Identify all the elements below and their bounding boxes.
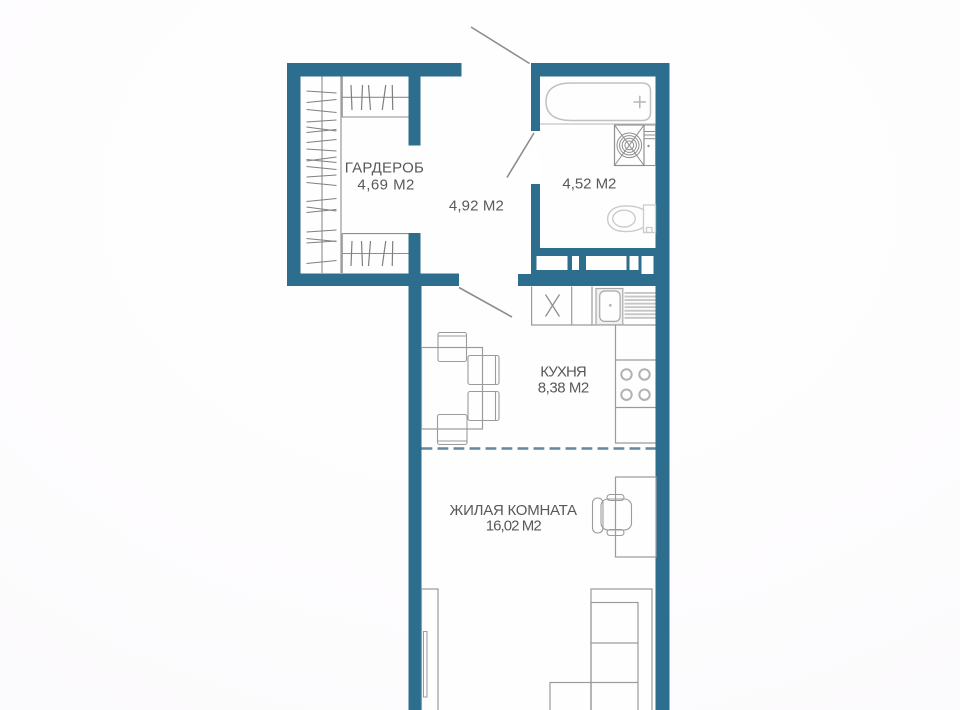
svg-text:8,38 М2: 8,38 М2 xyxy=(538,379,590,396)
svg-text:4,69 М2: 4,69 М2 xyxy=(357,177,414,194)
svg-text:ГАРДЕРОБ: ГАРДЕРОБ xyxy=(345,160,424,177)
svg-text:16,02 М2: 16,02 М2 xyxy=(486,518,542,535)
svg-text:КУХНЯ: КУХНЯ xyxy=(540,364,587,381)
svg-text:4,52 М2: 4,52 М2 xyxy=(562,176,616,193)
svg-text:ЖИЛАЯ КОМНАТА: ЖИЛАЯ КОМНАТА xyxy=(450,502,578,519)
svg-text:4,92 М2: 4,92 М2 xyxy=(449,198,504,215)
